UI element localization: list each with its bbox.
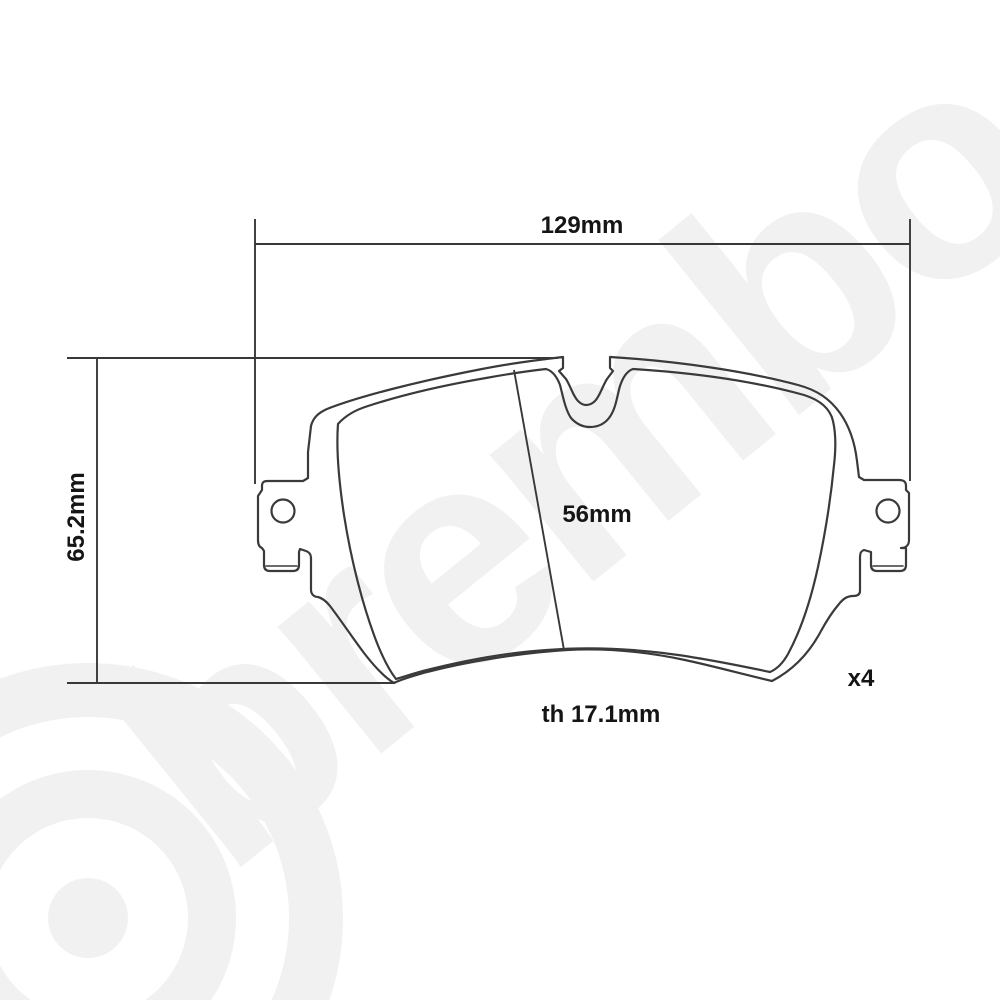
thickness-label: th 17.1mm — [542, 701, 661, 728]
watermark-logo-core — [48, 878, 128, 958]
width-dimension-label: 129mm — [541, 212, 624, 239]
pad-face-height-label: 56mm — [562, 501, 631, 528]
quantity-label: x4 — [848, 665, 875, 692]
brake-pad-technical-drawing: brembo 129mm 65.2mm 56mm th 17.1mm x4 — [0, 0, 1000, 1000]
height-dimension-label: 65.2mm — [63, 472, 90, 561]
